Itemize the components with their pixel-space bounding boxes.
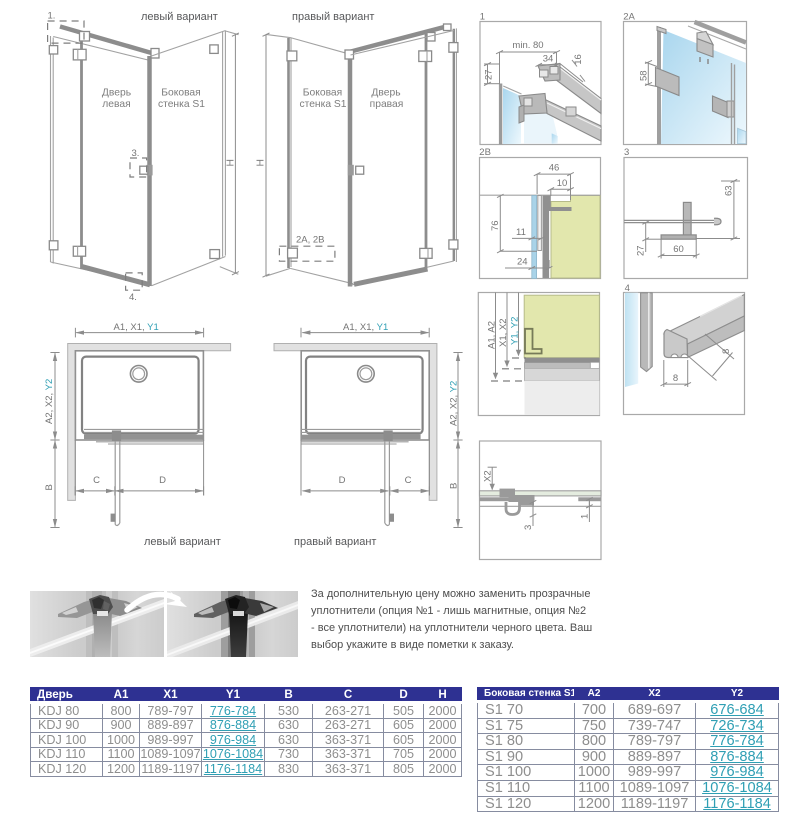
svg-text:B: B bbox=[449, 483, 460, 489]
svg-text:2A: 2A bbox=[623, 12, 635, 23]
svg-text:8: 8 bbox=[721, 349, 732, 354]
svg-text:34: 34 bbox=[543, 54, 554, 65]
svg-text:24: 24 bbox=[517, 257, 528, 268]
svg-text:H: H bbox=[256, 159, 267, 166]
svg-text:C: C bbox=[405, 475, 412, 486]
svg-text:min. 80: min. 80 bbox=[512, 40, 543, 51]
svg-text:H: H bbox=[226, 159, 237, 166]
svg-text:2A, 2B: 2A, 2B bbox=[296, 235, 325, 246]
svg-text:3: 3 bbox=[523, 525, 534, 530]
svg-text:63: 63 bbox=[724, 185, 735, 196]
svg-text:27: 27 bbox=[636, 245, 647, 256]
svg-text:D: D bbox=[339, 475, 346, 486]
svg-text:60: 60 bbox=[673, 244, 684, 255]
svg-text:58: 58 bbox=[639, 70, 650, 81]
svg-text:A2, X2, Y2: A2, X2, Y2 bbox=[44, 379, 55, 424]
svg-text:Боковая: Боковая bbox=[161, 88, 201, 99]
svg-text:C: C bbox=[93, 475, 100, 486]
svg-text:3.: 3. bbox=[132, 148, 140, 159]
svg-text:76: 76 bbox=[490, 220, 501, 231]
svg-text:Боковая: Боковая bbox=[303, 88, 343, 99]
svg-text:10: 10 bbox=[557, 178, 568, 189]
svg-text:A1, X1, Y1: A1, X1, Y1 bbox=[114, 322, 159, 333]
svg-text:стенка S1: стенка S1 bbox=[158, 99, 205, 110]
svg-text:27: 27 bbox=[484, 69, 495, 80]
svg-text:стенка S1: стенка S1 bbox=[299, 99, 346, 110]
svg-text:A1, A2: A1, A2 bbox=[487, 321, 498, 349]
svg-text:A2, X2, Y2: A2, X2, Y2 bbox=[449, 381, 460, 426]
svg-text:X1, X2: X1, X2 bbox=[498, 318, 509, 347]
svg-text:11: 11 bbox=[516, 227, 526, 238]
svg-text:4.: 4. bbox=[129, 292, 137, 303]
svg-text:3: 3 bbox=[624, 147, 629, 158]
svg-text:16: 16 bbox=[573, 54, 584, 65]
svg-text:Дверь: Дверь bbox=[102, 88, 131, 99]
svg-text:X2: X2 bbox=[483, 470, 494, 482]
svg-text:1.: 1. bbox=[48, 11, 56, 22]
svg-text:Дверь: Дверь bbox=[371, 88, 400, 99]
svg-text:1: 1 bbox=[580, 514, 591, 519]
svg-text:левая: левая bbox=[102, 99, 130, 110]
svg-text:B: B bbox=[44, 484, 55, 490]
svg-text:2B: 2B bbox=[479, 147, 491, 158]
svg-text:8: 8 bbox=[673, 373, 678, 384]
svg-text:Y1, Y2: Y1, Y2 bbox=[510, 317, 521, 345]
svg-text:46: 46 bbox=[549, 163, 560, 174]
svg-text:правая: правая bbox=[370, 99, 404, 110]
svg-text:A1, X1, Y1: A1, X1, Y1 bbox=[343, 322, 388, 333]
svg-text:D: D bbox=[159, 475, 166, 486]
svg-text:1: 1 bbox=[480, 12, 485, 23]
